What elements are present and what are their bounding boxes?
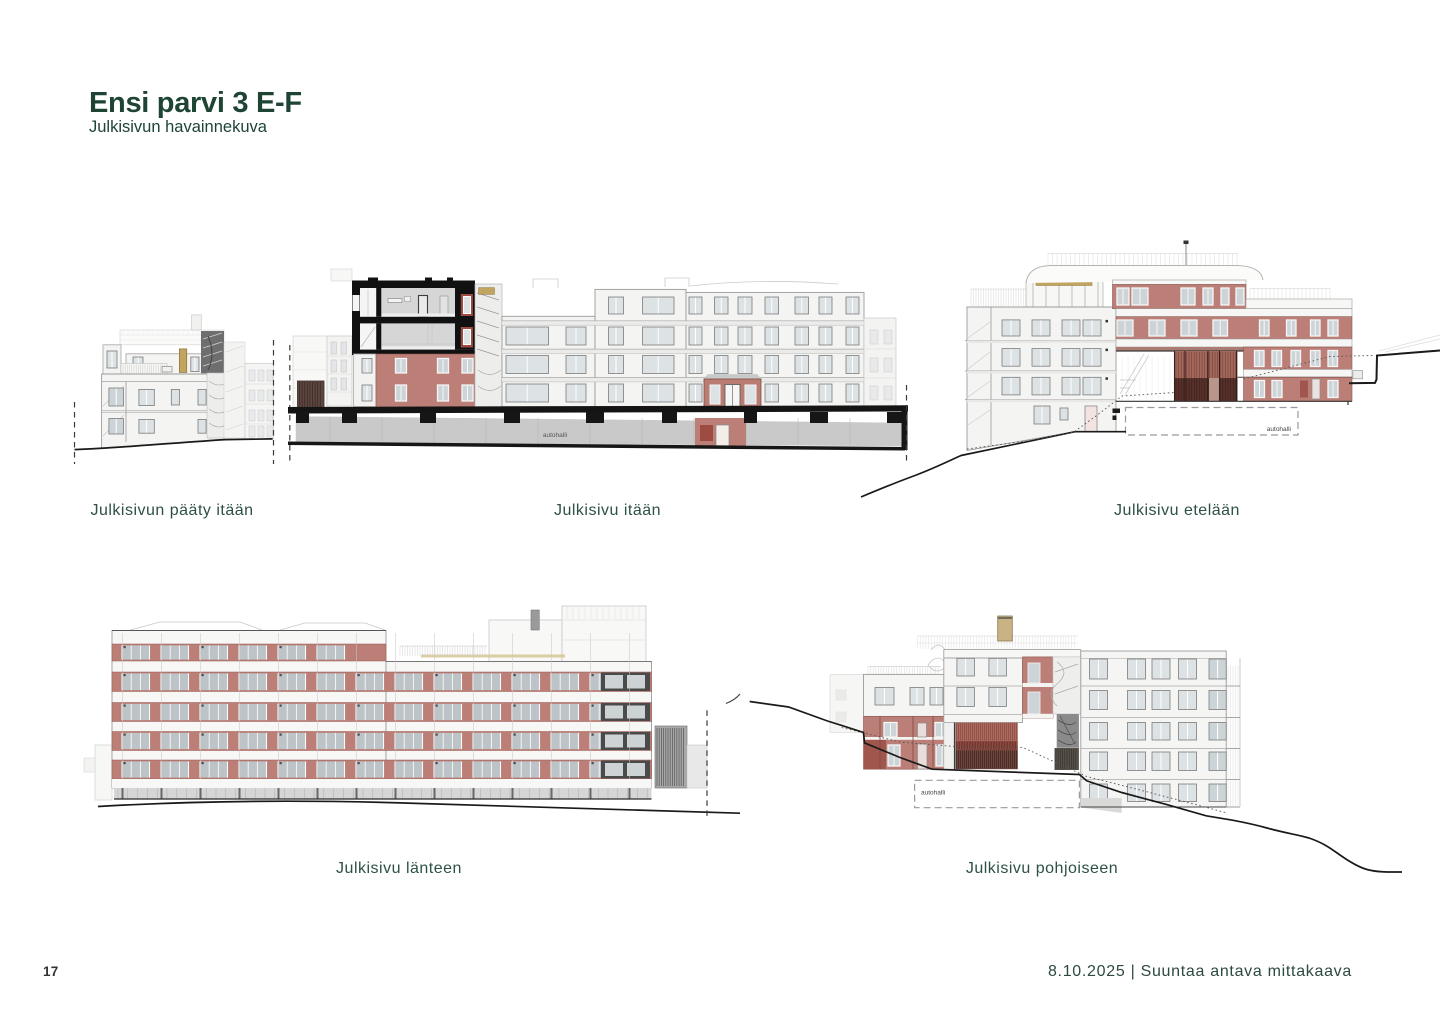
svg-text:autohalli: autohalli	[921, 790, 945, 797]
svg-text:Julkisivu etelään: Julkisivu etelään	[1114, 502, 1240, 519]
svg-text:Julkisivun havainnekuva: Julkisivun havainnekuva	[89, 118, 268, 136]
svg-text:Ensi parvi 3 E-F: Ensi parvi 3 E-F	[89, 87, 302, 119]
svg-text:Julkisivun pääty itään: Julkisivun pääty itään	[90, 502, 253, 519]
svg-text:8.10.2025 | Suuntaa antava mit: 8.10.2025 | Suuntaa antava mittakaava	[1048, 963, 1352, 980]
svg-text:Julkisivu itään: Julkisivu itään	[554, 502, 661, 519]
svg-text:autohalli: autohalli	[543, 432, 567, 439]
svg-text:Julkisivu länteen: Julkisivu länteen	[336, 860, 462, 877]
svg-text:17: 17	[43, 964, 59, 979]
svg-text:autohalli: autohalli	[1267, 426, 1291, 433]
svg-text:Julkisivu pohjoiseen: Julkisivu pohjoiseen	[966, 860, 1118, 877]
